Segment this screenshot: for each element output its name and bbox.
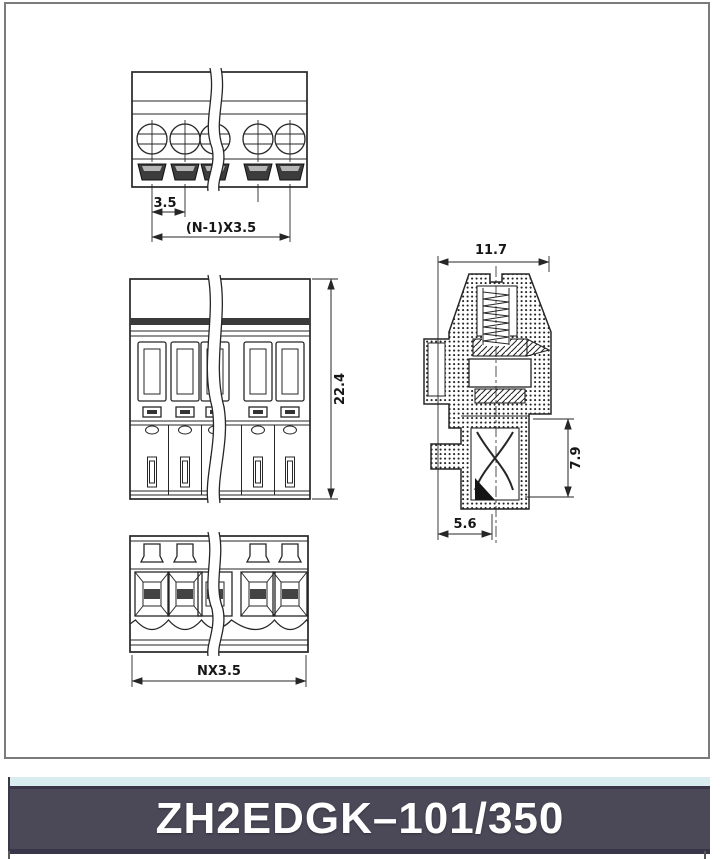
- title-banner: ZH2EDGK–101/350: [8, 777, 710, 854]
- bottom-view-drawing: NX3.5: [122, 529, 322, 694]
- model-number: ZH2EDGK–101/350: [156, 794, 565, 844]
- dim-bottom-width-label: 5.6: [453, 517, 476, 532]
- dim-height-label: 22.4: [333, 373, 348, 405]
- section-view-drawing: 11.7 7.9 5.6: [421, 232, 596, 552]
- dim-depth: 7.9: [525, 419, 584, 497]
- dim-width-label: 11.7: [475, 243, 507, 258]
- dim-pitch: 3.5 (N-1)X3.5: [152, 184, 290, 242]
- current-bar-hatch: [475, 389, 525, 403]
- plug-contact: [471, 428, 519, 500]
- top-view-drawing: 3.5 (N-1)X3.5: [122, 62, 322, 252]
- banner-bar: ZH2EDGK–101/350: [10, 786, 710, 854]
- wire-cavity: [469, 359, 531, 387]
- dim-pitch-label: 3.5: [153, 196, 176, 211]
- drawing-sheet: 3.5 (N-1)X3.5: [4, 2, 710, 759]
- front-view-drawing: 22.4: [122, 267, 352, 512]
- dim-height: 22.4: [312, 279, 348, 499]
- dim-total-pitch-label: (N-1)X3.5: [186, 221, 256, 236]
- next-section-box: [8, 851, 706, 859]
- dim-total-width-label: NX3.5: [197, 664, 241, 679]
- banner-top-strip: [10, 777, 710, 786]
- dim-depth-label: 7.9: [569, 446, 584, 469]
- dim-bottom-width: 5.6: [438, 514, 492, 540]
- break-line: [208, 68, 224, 191]
- dim-total-width: NX3.5: [132, 655, 306, 687]
